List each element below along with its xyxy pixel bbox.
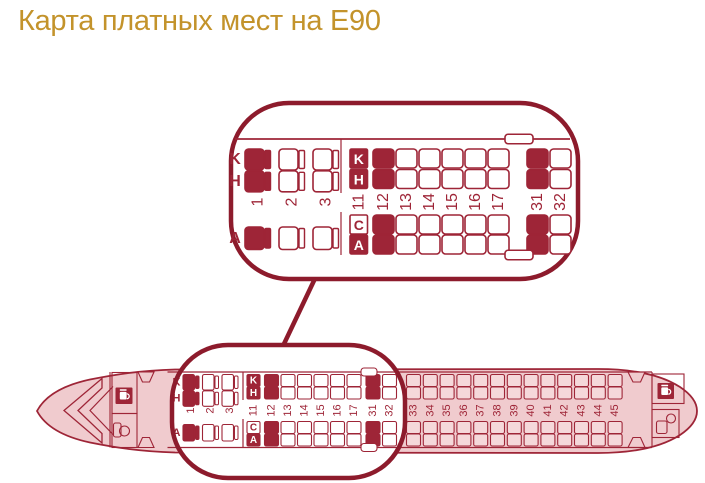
galley-icon — [661, 387, 668, 395]
seat-17K — [488, 149, 509, 168]
seat-38C — [491, 422, 505, 434]
seat-12C — [373, 215, 394, 234]
seat-17A — [347, 434, 361, 446]
seat-letter-H: H — [229, 173, 241, 190]
seat-43C — [575, 422, 589, 434]
row-number-13: 13 — [282, 404, 294, 416]
seat-11H-label: H — [250, 388, 257, 399]
seat-13A — [281, 434, 295, 446]
seat-14K — [298, 375, 312, 387]
seat-12H — [373, 170, 394, 189]
seat-38K — [491, 375, 505, 387]
zoom-callout: KHA123KHCA111213141516173132 — [229, 103, 578, 279]
seat-35K — [440, 375, 454, 387]
seat-12K — [373, 149, 394, 168]
seat-14H — [298, 387, 312, 399]
seat-41A — [541, 434, 555, 446]
seat-12A — [373, 235, 394, 254]
row-number-11: 11 — [248, 405, 260, 416]
seat-34K — [423, 375, 437, 387]
seat-16C — [331, 422, 345, 434]
seat-33K — [407, 375, 421, 387]
seat-36C — [457, 422, 471, 434]
seat-33A — [407, 434, 421, 446]
seat-31H — [527, 170, 548, 189]
business-seats-row-1-backrest — [265, 151, 271, 169]
seat-33C — [407, 422, 421, 434]
business-seats-row-1 — [245, 149, 264, 170]
row-number-35: 35 — [441, 404, 453, 416]
row-number-14: 14 — [421, 193, 438, 211]
seat-40K — [524, 375, 538, 387]
seat-12K — [265, 375, 279, 387]
row-number-11: 11 — [350, 194, 367, 211]
seat-41H — [541, 387, 555, 399]
business-seat-2A — [203, 425, 215, 442]
seat-36H — [457, 387, 471, 399]
seat-31H — [366, 387, 380, 399]
business-seats-row-3 — [222, 375, 234, 391]
seat-32K — [550, 149, 571, 168]
seat-16H — [331, 387, 345, 399]
business-seats-row-2 — [279, 149, 298, 170]
seat-13C — [281, 422, 295, 434]
seat-42K — [558, 375, 572, 387]
galley-icon — [661, 385, 668, 386]
row-number-31: 31 — [367, 404, 379, 416]
galley-icon — [120, 392, 127, 400]
row-number-40: 40 — [525, 404, 537, 416]
seat-37C — [474, 422, 488, 434]
row-number-15: 15 — [444, 193, 461, 211]
row-number-42: 42 — [559, 404, 571, 416]
business-seats-row-2-backrest — [299, 151, 305, 169]
seat-44K — [591, 375, 605, 387]
row-number-39: 39 — [508, 404, 520, 416]
business-seats-row-1-backrest — [196, 392, 200, 405]
overwing-exit-marker — [361, 444, 377, 452]
row-number-1: 1 — [185, 407, 197, 413]
business-seats-row-2-backrest — [299, 172, 305, 190]
seat-15K — [314, 375, 328, 387]
business-seat-1A — [183, 425, 195, 442]
row-number-2: 2 — [205, 407, 217, 413]
row-number-3: 3 — [317, 197, 334, 206]
business-seats-row-2 — [203, 375, 215, 391]
seat-15H — [314, 387, 328, 399]
seat-16C — [465, 215, 486, 234]
business-seats-row-2 — [203, 391, 215, 407]
seat-14A — [298, 434, 312, 446]
seat-15A — [314, 434, 328, 446]
business-seats-row-1 — [183, 375, 195, 391]
seat-32A — [550, 235, 571, 254]
seat-11A-label: A — [250, 435, 257, 446]
seat-map-diagram: KHA123KHCA111213141516173132333435363738… — [0, 0, 705, 483]
seat-36A — [457, 434, 471, 446]
row-number-12: 12 — [375, 193, 392, 211]
business-seats-row-3-backrest — [333, 151, 339, 169]
seat-13C — [396, 215, 417, 234]
row-number-14: 14 — [299, 404, 311, 416]
seat-31C — [366, 422, 380, 434]
seat-13H — [281, 387, 295, 399]
seat-15C — [314, 422, 328, 434]
business-seat-1A-backrest — [196, 426, 200, 440]
row-number-16: 16 — [467, 193, 484, 211]
seat-33H — [407, 387, 421, 399]
business-seats-row-1 — [183, 391, 195, 407]
seat-11K-label: K — [250, 376, 258, 387]
business-seats-row-3-backrest — [235, 376, 239, 389]
business-seat-1A-backrest — [265, 229, 271, 249]
row-number-32: 32 — [552, 193, 569, 211]
seat-13K — [396, 149, 417, 168]
business-seats-row-2-backrest — [215, 392, 219, 405]
seat-42A — [558, 434, 572, 446]
overwing-exit-marker — [361, 368, 377, 376]
business-seat-3A-backrest — [235, 426, 239, 440]
seat-11C-label: C — [250, 423, 257, 434]
row-number-12: 12 — [266, 404, 278, 416]
seat-11C-label: C — [354, 217, 364, 233]
business-seats-row-3 — [313, 171, 332, 192]
seat-32K — [383, 375, 397, 387]
seat-34H — [423, 387, 437, 399]
seat-42H — [558, 387, 572, 399]
row-number-36: 36 — [458, 404, 470, 416]
business-seat-2A-backrest — [215, 426, 219, 440]
overwing-exit-marker — [505, 134, 533, 144]
galley-icon — [120, 389, 127, 390]
seat-14K — [419, 149, 440, 168]
business-seat-3A — [222, 425, 234, 442]
row-number-13: 13 — [398, 193, 415, 211]
seat-35C — [440, 422, 454, 434]
seat-41K — [541, 375, 555, 387]
row-number-17: 17 — [348, 404, 360, 416]
seat-12A — [265, 434, 279, 446]
row-number-2: 2 — [283, 197, 300, 206]
seat-45K — [608, 375, 622, 387]
seat-37A — [474, 434, 488, 446]
row-number-32: 32 — [384, 404, 396, 416]
seat-39A — [507, 434, 521, 446]
seat-12H — [265, 387, 279, 399]
seat-letter-K: K — [229, 151, 241, 168]
seat-44A — [591, 434, 605, 446]
seat-43K — [575, 375, 589, 387]
seat-31C — [527, 215, 548, 234]
seat-32C — [383, 422, 397, 434]
business-seats-row-3-backrest — [333, 172, 339, 190]
row-number-15: 15 — [315, 404, 327, 416]
seat-17K — [347, 375, 361, 387]
seat-34A — [423, 434, 437, 446]
seat-16A — [465, 235, 486, 254]
seat-16H — [465, 170, 486, 189]
business-seats-row-3 — [313, 149, 332, 170]
seat-45H — [608, 387, 622, 399]
seat-35A — [440, 434, 454, 446]
seat-17H — [347, 387, 361, 399]
seat-14C — [298, 422, 312, 434]
row-number-17: 17 — [490, 193, 507, 211]
seat-17C — [347, 422, 361, 434]
seat-15H — [442, 170, 463, 189]
seat-12C — [265, 422, 279, 434]
seat-38A — [491, 434, 505, 446]
seat-40C — [524, 422, 538, 434]
seat-map-page: Карта платных мест на Е90 KHA123KHCA1112… — [0, 0, 705, 483]
seat-44C — [591, 422, 605, 434]
seat-13A — [396, 235, 417, 254]
seat-13H — [396, 170, 417, 189]
seat-32C — [550, 215, 571, 234]
seat-32A — [383, 434, 397, 446]
seat-39H — [507, 387, 521, 399]
business-seats-row-1 — [245, 171, 264, 192]
seat-44H — [591, 387, 605, 399]
business-seats-row-1-backrest — [265, 172, 271, 190]
seat-15K — [442, 149, 463, 168]
seat-32H — [550, 170, 571, 189]
seat-14H — [419, 170, 440, 189]
row-number-34: 34 — [424, 404, 436, 416]
seat-32H — [383, 387, 397, 399]
seat-13K — [281, 375, 295, 387]
overwing-exit-marker — [505, 250, 533, 260]
seat-42C — [558, 422, 572, 434]
seat-11A-label: A — [354, 237, 364, 253]
seat-17H — [488, 170, 509, 189]
row-number-16: 16 — [332, 404, 344, 416]
business-seats-row-1-backrest — [196, 376, 200, 389]
seat-15A — [442, 235, 463, 254]
seat-40A — [524, 434, 538, 446]
business-seats-row-2 — [279, 171, 298, 192]
seat-43H — [575, 387, 589, 399]
row-number-1: 1 — [249, 197, 266, 206]
seat-16K — [331, 375, 345, 387]
row-number-43: 43 — [576, 404, 588, 416]
seat-38H — [491, 387, 505, 399]
business-seat-3A — [313, 227, 332, 250]
seat-16K — [465, 149, 486, 168]
row-number-38: 38 — [492, 404, 504, 416]
seat-43A — [575, 434, 589, 446]
seat-11K-label: K — [354, 151, 364, 167]
business-seat-2A — [279, 227, 298, 250]
seat-36K — [457, 375, 471, 387]
seat-41C — [541, 422, 555, 434]
row-number-37: 37 — [475, 404, 487, 416]
business-seat-3A-backrest — [333, 229, 339, 249]
seat-37K — [474, 375, 488, 387]
seat-40H — [524, 387, 538, 399]
seat-17C — [488, 215, 509, 234]
business-seats-row-3-backrest — [235, 392, 239, 405]
seat-35H — [440, 387, 454, 399]
business-seat-2A-backrest — [299, 229, 305, 249]
business-seat-1A — [245, 227, 264, 250]
seat-37H — [474, 387, 488, 399]
seat-45A — [608, 434, 622, 446]
seat-39C — [507, 422, 521, 434]
seat-14A — [419, 235, 440, 254]
row-number-44: 44 — [592, 404, 604, 416]
row-number-31: 31 — [529, 193, 546, 211]
row-number-45: 45 — [609, 404, 621, 416]
seat-34C — [423, 422, 437, 434]
business-seats-row-3 — [222, 391, 234, 407]
seat-39K — [507, 375, 521, 387]
row-number-41: 41 — [542, 404, 554, 416]
seat-14C — [419, 215, 440, 234]
seat-letter-A: A — [229, 230, 241, 247]
seat-15C — [442, 215, 463, 234]
seat-11H-label: H — [354, 172, 364, 188]
seat-45C — [608, 422, 622, 434]
row-number-3: 3 — [224, 407, 236, 413]
row-number-33: 33 — [408, 404, 420, 416]
seat-31K — [527, 149, 548, 168]
business-seats-row-2-backrest — [215, 376, 219, 389]
seat-16A — [331, 434, 345, 446]
